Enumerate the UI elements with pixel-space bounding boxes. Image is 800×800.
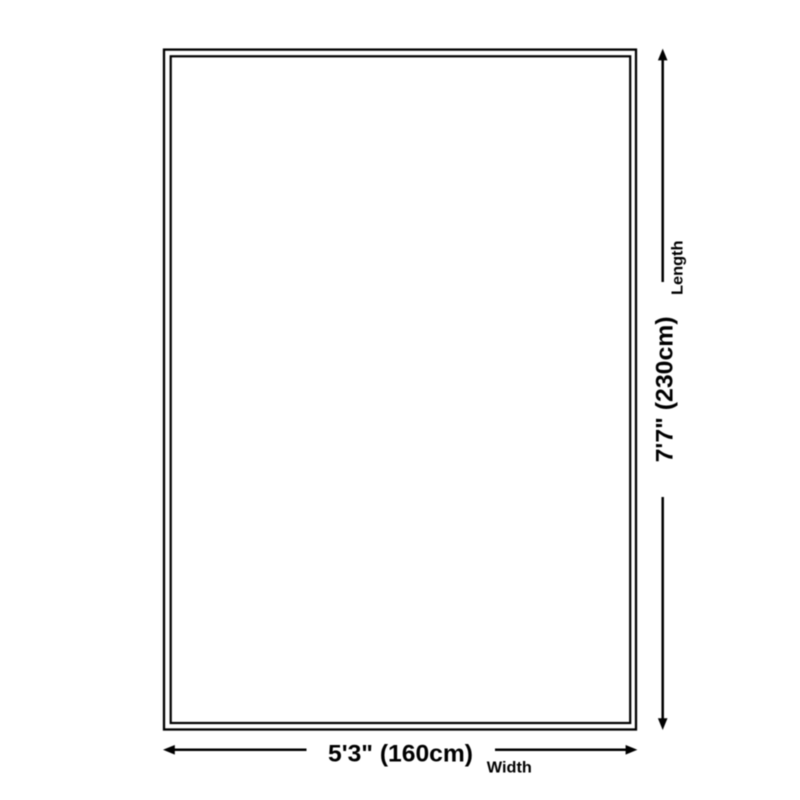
svg-text:7'7" (230cm): 7'7" (230cm) <box>652 316 679 462</box>
svg-text:Length: Length <box>670 241 687 296</box>
svg-text:Width: Width <box>487 759 532 776</box>
svg-text:5'3" (160cm): 5'3" (160cm) <box>328 741 473 768</box>
